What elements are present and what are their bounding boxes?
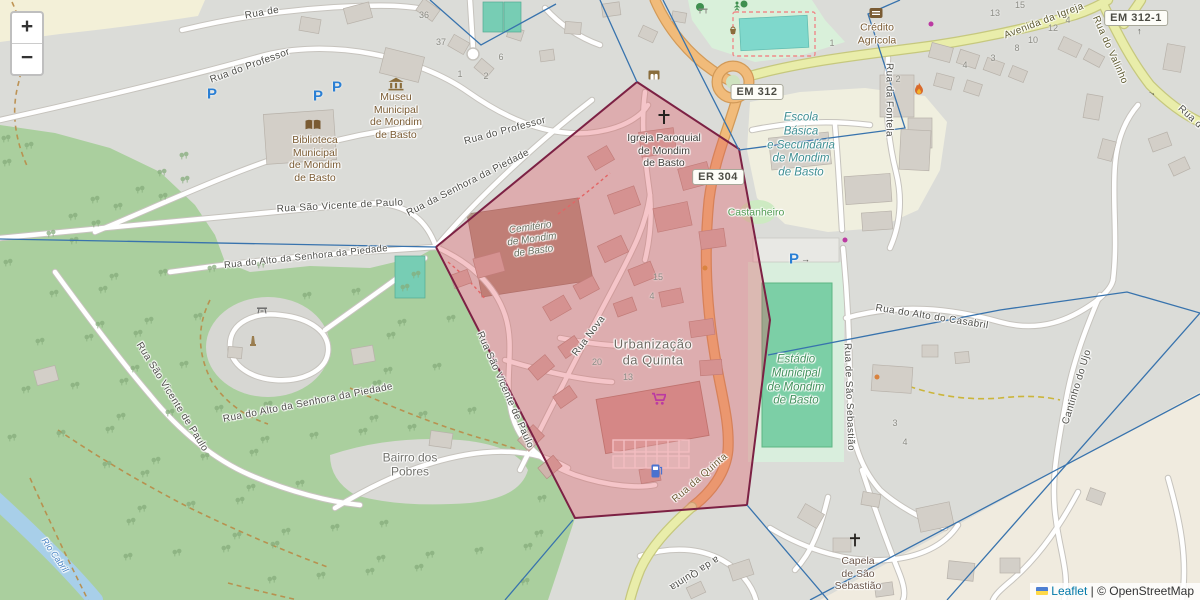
zoom-out-button[interactable]: − [12,44,42,74]
roundabout-island [726,75,740,89]
park-tree [741,1,748,8]
attribution-separator: | [1091,584,1094,598]
map-canvas[interactable]: Rua do Professor Rua do Professor Rua de… [0,0,1200,600]
leaflet-link[interactable]: Leaflet [1051,584,1087,598]
osm-copyright: © OpenStreetMap [1097,584,1194,598]
map-tiles [0,0,1200,600]
zoom-control: + − [10,11,44,76]
zoom-in-button[interactable]: + [12,13,42,44]
ukraine-flag-icon [1036,587,1048,595]
attribution-bar: Leaflet | © OpenStreetMap [1030,583,1200,600]
park-tree [696,3,704,11]
football-pitch [762,283,832,447]
cul-de-sac [467,48,479,60]
pool-area [739,15,809,51]
stadium-parking [753,238,839,262]
